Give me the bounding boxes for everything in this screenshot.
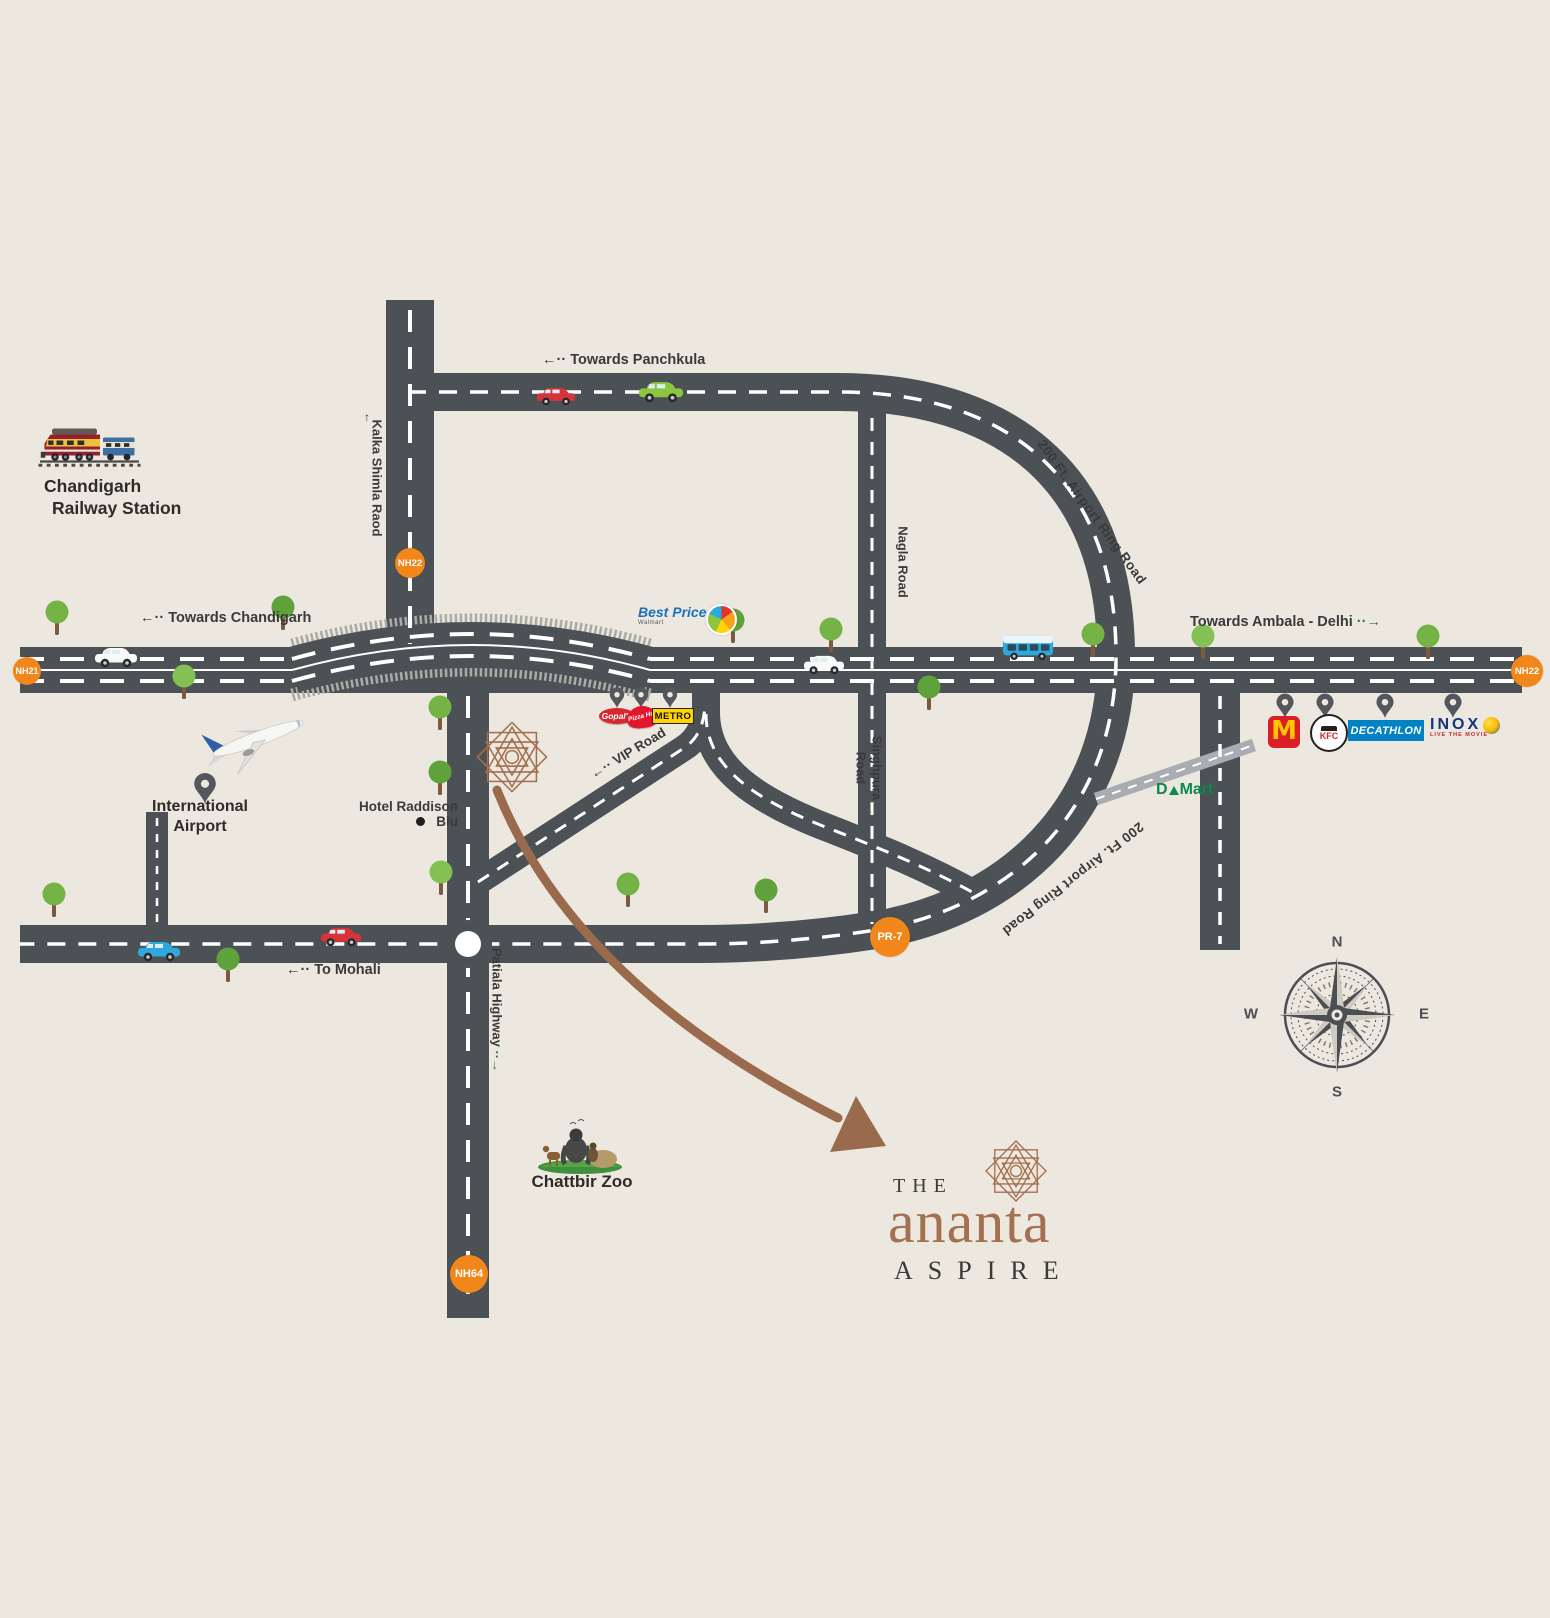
panchkula-arrow-icon: ←·· bbox=[542, 352, 566, 368]
zoo-animals-icon bbox=[538, 1120, 622, 1175]
best-price-logo: Best Price Walmart bbox=[638, 604, 737, 635]
patiala-highway-label: Patiala Highway ··→ bbox=[490, 948, 505, 1072]
railway-line2: Railway Station bbox=[44, 498, 181, 520]
train-icon bbox=[39, 429, 141, 466]
railway-line1: Chandigarh bbox=[44, 476, 181, 498]
railway-station-label: Chandigarh Railway Station bbox=[44, 476, 181, 520]
dmart-label: D Mart bbox=[1156, 781, 1213, 799]
kfc-logo: KFC bbox=[1310, 714, 1348, 752]
nagla-road-label: Nagla Road bbox=[896, 526, 911, 598]
inner-curve-road bbox=[706, 690, 978, 896]
inox-ball-icon bbox=[1483, 717, 1500, 734]
singhpura-arrow-icon: ··→ bbox=[865, 796, 879, 816]
compass-n: N bbox=[1332, 934, 1343, 951]
compass-rose-icon bbox=[1275, 953, 1399, 1077]
chandigarh-arrow-icon: ←·· bbox=[140, 610, 164, 626]
best-price-pinwheel-icon bbox=[706, 604, 737, 635]
brand-name: ananta bbox=[888, 1192, 1051, 1252]
metro-logo: METRO bbox=[652, 708, 694, 724]
ambala-arrow-icon: ··→ bbox=[1357, 614, 1381, 630]
patiala-arrow-icon: ··→ bbox=[490, 1050, 505, 1072]
nh22-top-badge: NH22 bbox=[395, 548, 425, 578]
towards-panchkula-label: ←·· Towards Panchkula bbox=[542, 352, 705, 368]
chattbir-zoo-label: Chattbir Zoo bbox=[531, 1172, 632, 1192]
pr7-badge: PR-7 bbox=[870, 917, 910, 957]
towards-ambala-label: Towards Ambala - Delhi ··→ bbox=[1190, 614, 1381, 630]
airport-label: International Airport bbox=[152, 797, 248, 837]
roundabout bbox=[444, 920, 492, 968]
compass-s: S bbox=[1332, 1084, 1342, 1101]
brand-tagline: ASPIRE bbox=[894, 1256, 1074, 1286]
best-price-sub: Walmart bbox=[638, 620, 706, 626]
decathlon-logo: DECATHLON bbox=[1348, 720, 1424, 741]
hotel-label: Hotel Raddison Blu bbox=[340, 799, 458, 829]
nh22-right-badge: NH22 bbox=[1511, 655, 1543, 687]
singhpura-road-label: Singhpura Road bbox=[852, 736, 885, 800]
towards-chandigarh-label: ←·· Towards Chandigarh bbox=[140, 610, 311, 626]
location-map: Chandigarh Railway Station ↑ Kalka Shiml… bbox=[0, 0, 1550, 1618]
nh21-badge: NH21 bbox=[13, 657, 41, 685]
hotel-dot-icon bbox=[416, 817, 425, 826]
compass-e: E bbox=[1419, 1006, 1429, 1023]
site-mandala-icon bbox=[477, 722, 546, 791]
kalka-shimla-label: Kalka Shimla Raod bbox=[370, 419, 385, 536]
dmart-triangle-icon bbox=[1169, 786, 1179, 795]
compass-w: W bbox=[1244, 1006, 1258, 1023]
mcdonalds-logo: M bbox=[1268, 716, 1300, 748]
best-price-text: Best Price bbox=[638, 604, 706, 620]
airplane-icon bbox=[196, 700, 313, 783]
nh64-badge: NH64 bbox=[450, 1255, 488, 1293]
mohali-arrow-icon: ←·· bbox=[286, 962, 310, 978]
to-mohali-label: ←·· To Mohali bbox=[286, 962, 381, 978]
inox-logo: INOX LIVE THE MOVIE bbox=[1430, 716, 1500, 738]
